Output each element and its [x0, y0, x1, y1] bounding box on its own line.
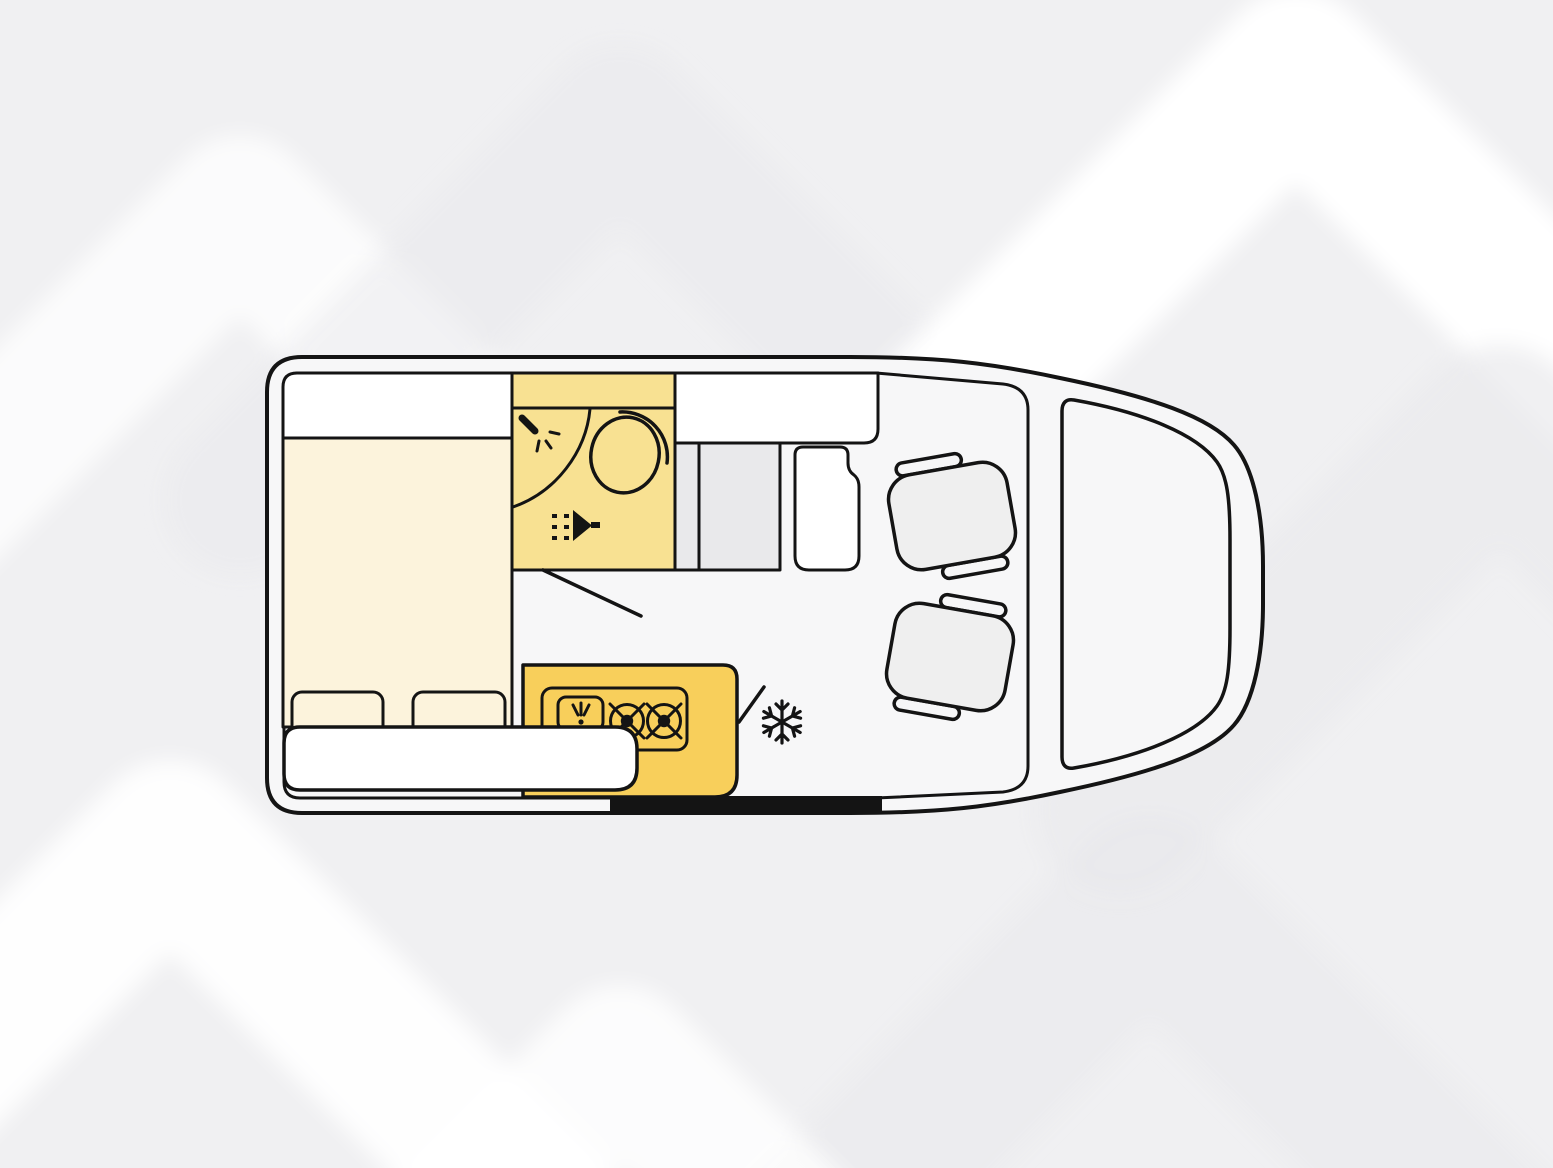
entry-door-bar: [610, 796, 882, 813]
wardrobe-section-narrow: [675, 443, 699, 570]
double-bed: [283, 438, 512, 727]
overhead-cabinet: [675, 373, 878, 443]
seat-cushion: [883, 599, 1018, 714]
van-floorplan: [267, 357, 1263, 813]
floorplan-svg: [0, 0, 1553, 1168]
floorplan-illustration: [0, 0, 1553, 1168]
rear-storage-shelf: [283, 373, 512, 438]
side-bench: [284, 727, 637, 790]
wardrobe-section-wide: [699, 443, 780, 570]
seat-cushion: [885, 458, 1020, 573]
tall-locker: [795, 447, 859, 570]
